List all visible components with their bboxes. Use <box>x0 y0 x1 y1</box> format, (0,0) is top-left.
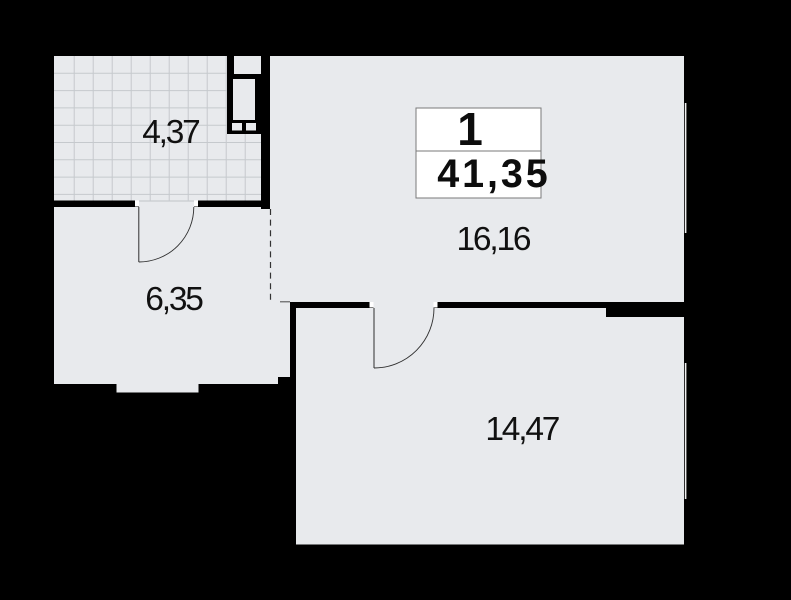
svg-text:1: 1 <box>457 103 483 155</box>
svg-text:6,35: 6,35 <box>145 281 203 318</box>
svg-text:41,35: 41,35 <box>437 152 550 196</box>
svg-text:16,16: 16,16 <box>456 221 530 258</box>
svg-text:14,47: 14,47 <box>485 411 558 448</box>
svg-text:4,37: 4,37 <box>142 114 199 151</box>
